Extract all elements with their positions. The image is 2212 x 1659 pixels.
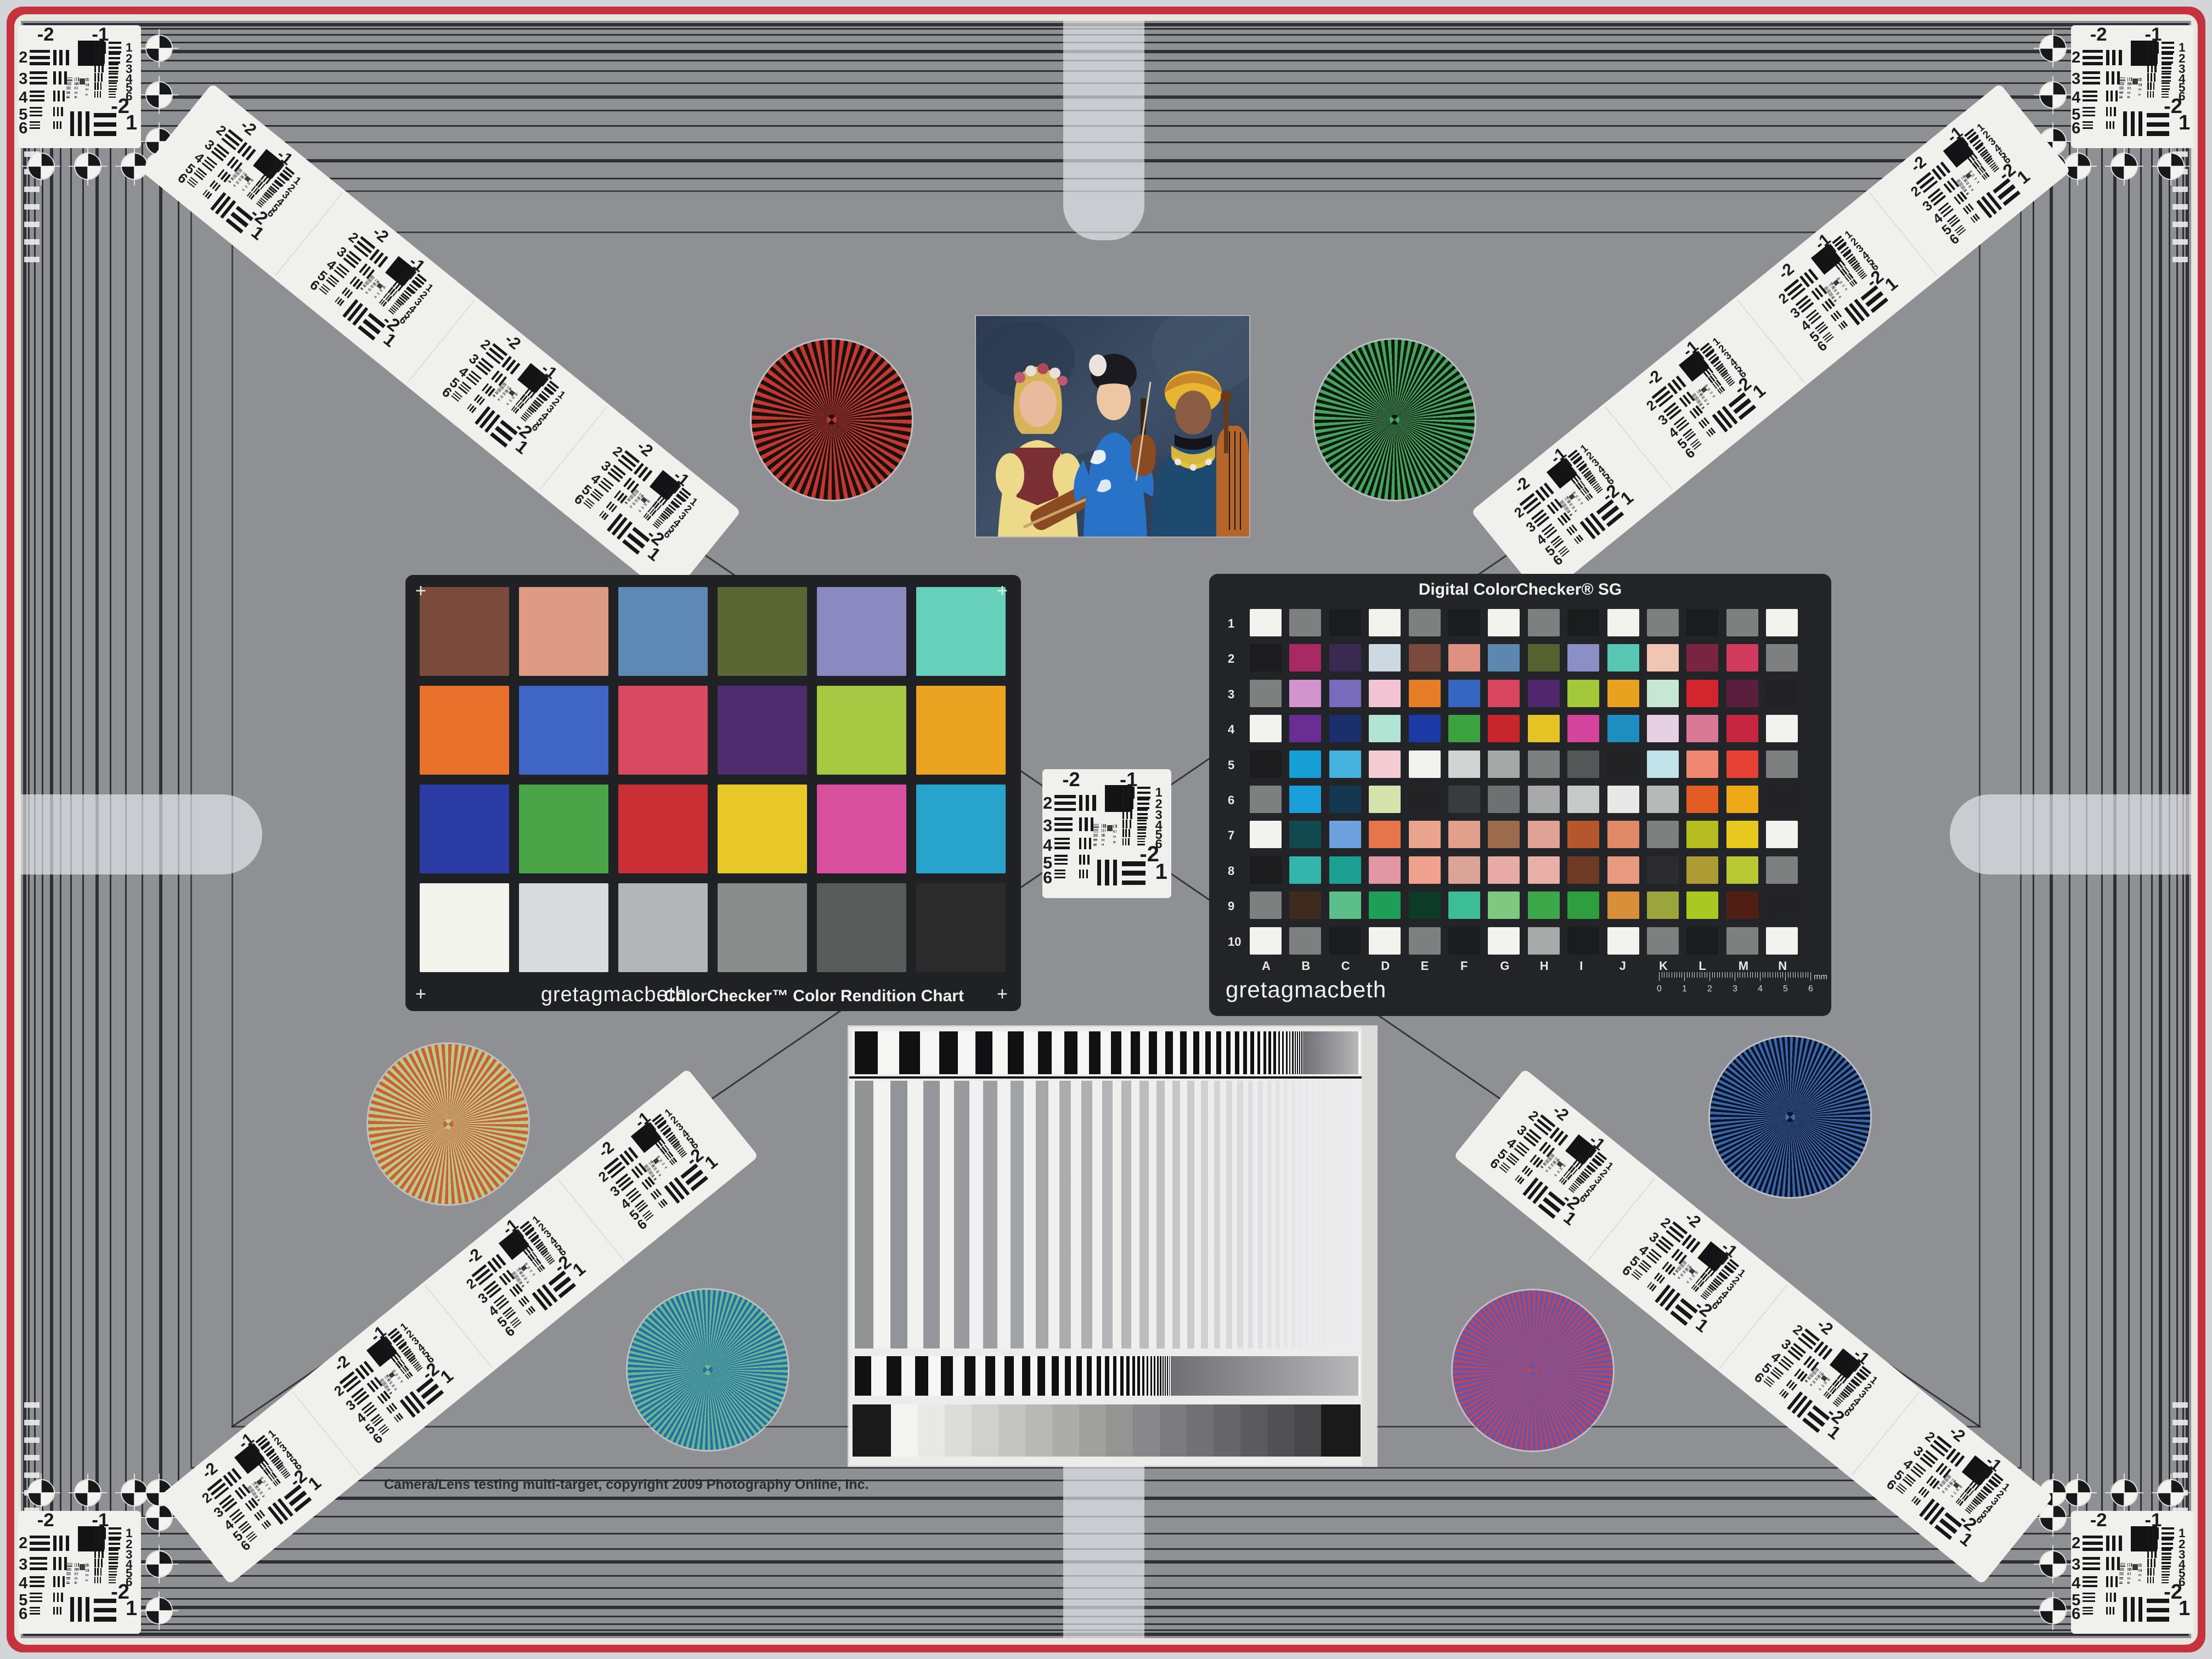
sweep-bar xyxy=(855,1031,878,1074)
horizontal-tribar xyxy=(2119,96,2123,98)
vertical-tribar xyxy=(2147,1559,2155,1567)
vertical-tribar xyxy=(374,296,377,298)
vertical-tribar xyxy=(259,1492,263,1495)
edge-tick xyxy=(24,204,39,210)
bar xyxy=(75,87,75,89)
edge-tick xyxy=(2172,1472,2188,1478)
ruler-tick xyxy=(1694,972,1695,978)
sine-bar xyxy=(890,1081,908,1348)
bar xyxy=(1820,1389,1821,1391)
vertical-tribar xyxy=(1554,1174,1557,1177)
sweep-bar xyxy=(1292,1031,1294,1074)
bar xyxy=(2111,91,2113,101)
vertical-tribar xyxy=(1575,510,1577,512)
bar xyxy=(2083,95,2097,97)
vertical-tribar xyxy=(394,1388,397,1391)
bar xyxy=(2119,98,2123,98)
vertical-tribar xyxy=(1821,1384,1825,1387)
vertical-tribar xyxy=(2123,111,2142,136)
horizontal-tribar xyxy=(229,1509,245,1524)
bar xyxy=(66,1563,72,1564)
group-label: 1 xyxy=(511,436,532,459)
color-patch xyxy=(1488,680,1520,707)
bar xyxy=(2083,99,2097,101)
vertical-tribar xyxy=(262,1480,266,1483)
bar xyxy=(86,83,86,86)
bar xyxy=(87,88,87,91)
vertical-tribar xyxy=(2147,1549,2157,1558)
edge-tick xyxy=(24,1437,39,1443)
color-patch xyxy=(1250,609,1282,636)
color-patch xyxy=(1369,680,1401,707)
vertical-tribar xyxy=(1102,829,1106,832)
vertical-tribar xyxy=(94,63,104,72)
bar xyxy=(2140,1574,2140,1576)
vertical-tribar xyxy=(646,499,651,503)
edge-tick xyxy=(2172,1437,2188,1443)
vertical-tribar xyxy=(392,1385,395,1388)
bar xyxy=(1137,820,1147,821)
vertical-tribar xyxy=(1113,825,1117,828)
bar xyxy=(101,73,103,81)
bar xyxy=(510,400,512,402)
horizontal-tribar xyxy=(1809,1373,1814,1378)
bar xyxy=(76,1582,77,1584)
bar xyxy=(109,1568,117,1570)
ruler-tick xyxy=(1763,972,1763,978)
color-patch xyxy=(1607,927,1639,955)
bar xyxy=(66,79,72,80)
color-patch xyxy=(1369,644,1401,672)
horizontal-tribar xyxy=(1831,296,1835,299)
column-label: A xyxy=(1262,959,1271,973)
sweep-bar xyxy=(1149,1031,1157,1074)
color-patch xyxy=(1647,644,1679,672)
horizontal-tribar xyxy=(257,1499,260,1502)
bar xyxy=(2152,1538,2154,1549)
bar xyxy=(30,62,50,65)
horizontal-tribar xyxy=(94,113,116,136)
bar xyxy=(88,78,89,81)
vertical-tribar xyxy=(1122,798,1133,809)
color-patch xyxy=(1488,856,1520,884)
vertical-tribar xyxy=(662,1163,665,1166)
sweep-bar xyxy=(855,1356,871,1396)
bar xyxy=(2141,83,2141,86)
sweep-bar xyxy=(1113,1356,1117,1396)
horizontal-tribar xyxy=(1543,1162,1547,1165)
bar xyxy=(2154,1559,2155,1567)
bar xyxy=(2119,83,2124,84)
color-patch xyxy=(1369,786,1401,813)
group-label: -2 xyxy=(198,1459,221,1483)
bar xyxy=(2162,71,2172,72)
bar xyxy=(66,1575,71,1575)
bar xyxy=(66,84,71,85)
horizontal-tribar xyxy=(94,1599,116,1621)
bar xyxy=(75,77,76,81)
sweep-bar xyxy=(1163,1356,1164,1396)
bar xyxy=(2119,1568,2124,1568)
horizontal-tribar xyxy=(1699,403,1703,406)
horizontal-tribar xyxy=(2162,42,2175,53)
horizontal-tribar xyxy=(1955,225,1966,236)
bar xyxy=(86,111,89,136)
bar xyxy=(2162,1543,2173,1545)
bar xyxy=(30,1593,42,1594)
edge-tick xyxy=(24,187,39,192)
horizontal-tribar xyxy=(1638,1260,1651,1273)
vertical-tribar xyxy=(1779,1389,1789,1398)
vertical-tribar xyxy=(2128,87,2131,89)
vertical-tribar xyxy=(377,292,380,295)
horizontal-tribar xyxy=(1093,844,1097,846)
bar xyxy=(2147,53,2149,63)
bar xyxy=(2106,50,2109,65)
vertical-tribar xyxy=(518,1295,529,1307)
vertical-tribar xyxy=(1819,1388,1821,1391)
bar xyxy=(109,57,120,59)
bar xyxy=(109,88,117,90)
horizontal-tribar xyxy=(30,1607,40,1615)
vertical-tribar xyxy=(1966,182,1970,185)
vertical-tribar xyxy=(1974,177,1977,180)
bar xyxy=(2130,87,2131,89)
bar xyxy=(2162,47,2175,49)
color-patch xyxy=(1409,680,1441,707)
element-number: 3 xyxy=(2072,70,2080,88)
horizontal-tribar xyxy=(2119,77,2125,81)
bar xyxy=(109,1571,117,1573)
vertical-tribar xyxy=(1842,284,1845,287)
bar xyxy=(1054,842,1070,844)
vertical-tribar xyxy=(467,403,477,413)
vertical-tribar xyxy=(1821,298,1835,312)
color-patch xyxy=(1766,821,1798,848)
sweep-bar xyxy=(1165,1356,1166,1396)
ruler-tick xyxy=(1750,972,1751,978)
bar xyxy=(2123,111,2127,136)
bar xyxy=(1093,845,1097,846)
bar xyxy=(1054,855,1068,857)
group-label: -2 xyxy=(1813,1316,1836,1339)
bar xyxy=(2119,93,2123,94)
bar xyxy=(1122,871,1145,876)
bar xyxy=(1093,829,1098,830)
horizontal-tribar xyxy=(503,1307,516,1320)
element-number: 6 xyxy=(19,1605,27,1623)
horizontal-tribar xyxy=(510,1317,522,1328)
bar xyxy=(2083,125,2093,126)
horizontal-tribar xyxy=(2083,1607,2093,1615)
vertical-tribar xyxy=(53,1576,65,1587)
bar xyxy=(2147,1559,2149,1567)
bar xyxy=(53,1593,55,1602)
vertical-tribar xyxy=(509,1284,523,1297)
element-number: 6 xyxy=(571,491,587,508)
ruler-tick xyxy=(1677,972,1677,978)
vertical-tribar xyxy=(53,71,67,84)
group-label: 1 xyxy=(2179,1597,2190,1621)
color-patch xyxy=(1528,927,1560,955)
bar xyxy=(2119,1569,2124,1570)
bar xyxy=(66,92,70,92)
vertical-tribar xyxy=(1812,1380,1815,1384)
bar xyxy=(2162,91,2169,92)
color-patch xyxy=(718,785,807,873)
horizontal-tribar xyxy=(2162,73,2171,81)
bar xyxy=(2151,1549,2153,1558)
color-patch xyxy=(1686,715,1718,742)
bar xyxy=(2119,1579,2123,1579)
sine-bar xyxy=(1011,1081,1024,1348)
ruler-tick xyxy=(1782,972,1783,978)
center-usaf-card: -2-123456123456-21 xyxy=(1042,769,1171,898)
ruler-tick xyxy=(1707,972,1707,978)
ruler-number: 1 xyxy=(1682,984,1687,994)
bar xyxy=(30,1576,44,1578)
bar xyxy=(2154,63,2156,72)
vertical-tribar xyxy=(53,107,63,116)
bar xyxy=(109,91,116,92)
column-label: C xyxy=(1341,959,1350,973)
vertical-tribar xyxy=(2106,1593,2116,1602)
ruler-tick xyxy=(1717,972,1718,978)
bar xyxy=(1079,870,1081,878)
bar xyxy=(86,1597,89,1622)
bar xyxy=(76,77,77,81)
crosshair-line xyxy=(2077,1474,2078,1512)
element-number: 2 xyxy=(19,1534,27,1553)
color-patch xyxy=(1766,891,1798,919)
color-patch xyxy=(1369,715,1401,742)
bar xyxy=(2147,1617,2169,1621)
bar xyxy=(109,1562,118,1564)
bar xyxy=(1086,795,1089,811)
vertical-tribar xyxy=(253,1510,265,1521)
sine-bar xyxy=(1102,1081,1113,1348)
three-musicians-photo xyxy=(976,316,1249,537)
gray-step xyxy=(1133,1404,1160,1457)
colorchecker-sg-chart: Digital ColorChecker® SG12345678910ABCDE… xyxy=(1209,574,1831,1016)
group-label: -2 xyxy=(369,223,392,247)
vertical-tribar xyxy=(2138,1574,2141,1576)
bar xyxy=(2162,1532,2175,1534)
bar xyxy=(2131,1563,2132,1566)
horizontal-tribar xyxy=(590,488,603,501)
ruler-tick xyxy=(1780,972,1781,978)
element-number: 4 xyxy=(2072,1575,2080,1593)
brand-text: gretagmacbeth xyxy=(1226,977,1386,1003)
bar xyxy=(2151,63,2153,72)
color-patch xyxy=(1289,680,1321,707)
gray-step xyxy=(918,1404,945,1457)
horizontal-tribar xyxy=(360,287,364,290)
color-patch xyxy=(1528,715,1560,742)
vertical-tribar xyxy=(1968,185,1972,188)
bar xyxy=(30,91,44,93)
bar xyxy=(77,1577,77,1579)
horizontal-tribar xyxy=(1054,795,1076,811)
horizontal-tribar xyxy=(109,82,117,90)
bar xyxy=(2153,1568,2155,1576)
vertical-tribar xyxy=(94,1577,101,1583)
bar xyxy=(59,50,63,65)
bar xyxy=(2119,1575,2124,1575)
color-patch xyxy=(1329,927,1361,955)
vertical-tribar xyxy=(1833,289,1837,292)
ruler-tick xyxy=(1700,972,1700,978)
bar xyxy=(70,1597,74,1622)
group-label: 1 xyxy=(1824,1421,1844,1444)
bar xyxy=(86,1574,86,1576)
bar xyxy=(53,50,57,65)
bar xyxy=(2083,50,2103,53)
star-blue-green xyxy=(628,1290,788,1450)
horizontal-tribar xyxy=(1763,1376,1775,1387)
bar xyxy=(98,73,99,81)
sine-bar xyxy=(1059,1081,1071,1348)
sweep-bar xyxy=(1137,1356,1140,1396)
vertical-tribar xyxy=(1970,213,1980,223)
vertical-tribar xyxy=(2147,1538,2158,1549)
ruler-tick xyxy=(1737,972,1738,978)
horizontal-tribar xyxy=(66,1582,70,1584)
bar xyxy=(2083,1562,2100,1565)
bar xyxy=(1132,787,1135,799)
vertical-tribar xyxy=(94,42,106,53)
ruler-tick xyxy=(1810,972,1811,981)
bar xyxy=(2138,1597,2142,1622)
bar xyxy=(66,1570,71,1571)
horizontal-tribar xyxy=(2083,1557,2100,1570)
bar xyxy=(1137,792,1151,794)
bar xyxy=(2119,1563,2125,1564)
row-label: 10 xyxy=(1228,935,1241,949)
bar xyxy=(1130,809,1132,819)
crosshair-line xyxy=(2124,147,2125,185)
bar xyxy=(1092,795,1096,811)
bar xyxy=(30,115,42,116)
sweep-bar xyxy=(1295,1031,1296,1074)
bar xyxy=(77,1568,78,1571)
horizontal-tribar xyxy=(1910,1463,1926,1478)
bar xyxy=(53,91,55,101)
bar xyxy=(2128,1563,2129,1566)
group-label: -2 xyxy=(37,1510,54,1531)
bar xyxy=(1684,1272,1686,1274)
bar xyxy=(1079,838,1081,849)
bar xyxy=(94,42,97,53)
bar xyxy=(1113,836,1114,838)
bar xyxy=(645,504,647,506)
star-center xyxy=(1387,413,1401,426)
vertical-tribar xyxy=(1122,787,1135,799)
horizontal-tribar xyxy=(1807,1376,1811,1380)
bar xyxy=(2140,1564,2140,1567)
bar xyxy=(2128,77,2129,81)
bar xyxy=(53,1576,55,1587)
vertical-tribar xyxy=(1122,829,1130,837)
color-patch xyxy=(1250,786,1282,813)
vertical-tribar xyxy=(1689,405,1703,419)
color-patch xyxy=(1686,609,1718,636)
vertical-tribar xyxy=(2106,1536,2122,1551)
sine-bar xyxy=(1081,1081,1092,1348)
bar xyxy=(97,91,98,98)
sweep-bar xyxy=(1169,1356,1170,1396)
bar xyxy=(1054,847,1070,849)
group-label: 1 xyxy=(126,111,137,135)
horizontal-tribar xyxy=(109,1538,120,1549)
color-patch xyxy=(1647,856,1679,884)
sweep-bar xyxy=(1087,1356,1092,1396)
color-patch xyxy=(718,883,807,972)
horizontal-tribar xyxy=(2083,121,2093,129)
horizontal-tribar xyxy=(109,1568,117,1576)
element-number: 4 xyxy=(1043,836,1052,855)
bar xyxy=(1679,1278,1680,1279)
color-patch xyxy=(1766,680,1798,707)
vertical-tribar xyxy=(514,392,518,396)
horizontal-tribar xyxy=(626,1187,642,1203)
bar xyxy=(1681,1274,1683,1276)
bar xyxy=(2128,82,2128,86)
star-center xyxy=(441,1117,455,1131)
color-patch xyxy=(1766,786,1798,813)
horizontal-tribar xyxy=(1646,1249,1662,1264)
vertical-tribar xyxy=(1691,1274,1695,1278)
horizontal-tribar xyxy=(1523,1129,1542,1147)
bar xyxy=(2119,1578,2123,1578)
horizontal-tribar xyxy=(1805,1379,1808,1382)
group-label: -2 xyxy=(2090,24,2107,46)
vertical-tribar xyxy=(1113,841,1116,843)
bar xyxy=(101,63,103,72)
bar xyxy=(98,1559,99,1567)
horizontal-tribar xyxy=(1541,1165,1544,1168)
bar xyxy=(1814,1382,1815,1384)
bar xyxy=(2155,53,2158,63)
ruler-tick xyxy=(1742,972,1743,978)
bar xyxy=(1552,1165,1554,1167)
bar xyxy=(30,56,50,59)
edge-tick xyxy=(24,1420,39,1425)
vertical-tribar xyxy=(242,189,245,191)
horizontal-tribar xyxy=(1937,1486,1940,1489)
vertical-tribar xyxy=(1575,494,1578,498)
color-patch xyxy=(1607,821,1639,848)
horizontal-tribar xyxy=(2162,1568,2170,1576)
bar xyxy=(2147,82,2149,90)
edge-tick xyxy=(2172,222,2188,227)
color-patch xyxy=(420,785,509,873)
bar xyxy=(2162,1571,2170,1573)
bar xyxy=(2119,1573,2124,1574)
bar xyxy=(2140,83,2140,86)
bar xyxy=(2106,71,2109,84)
bar xyxy=(2128,1577,2128,1579)
color-patch xyxy=(1528,891,1560,919)
bar xyxy=(1137,836,1146,837)
crosshair-line xyxy=(159,76,160,114)
color-patch xyxy=(1528,609,1560,636)
bar xyxy=(1547,1171,1548,1172)
mini-square xyxy=(80,78,85,84)
horizontal-tribar xyxy=(109,1527,122,1539)
bar xyxy=(1079,855,1081,865)
sweep-bar xyxy=(1132,1356,1135,1396)
